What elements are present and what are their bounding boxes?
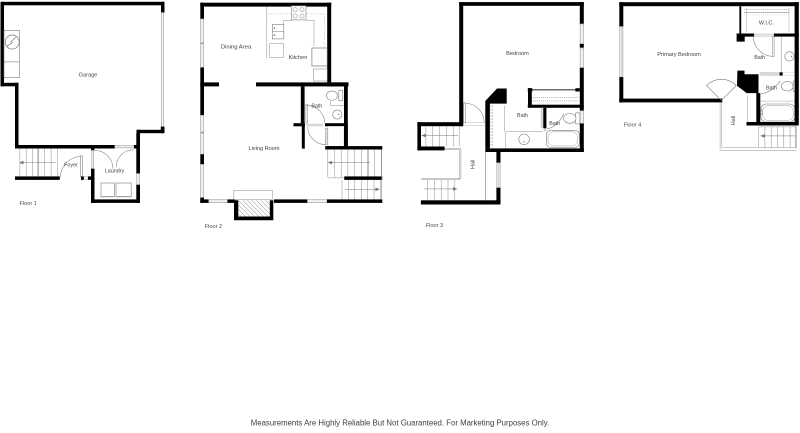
svg-text:Primary Bedroom: Primary Bedroom bbox=[657, 52, 701, 58]
svg-text:Foyer: Foyer bbox=[64, 162, 78, 168]
svg-text:Kitchen: Kitchen bbox=[289, 55, 308, 61]
svg-text:Garage: Garage bbox=[79, 72, 98, 78]
svg-text:Floor 4: Floor 4 bbox=[624, 123, 641, 129]
svg-text:Bath: Bath bbox=[754, 55, 765, 61]
svg-text:Dining Area: Dining Area bbox=[221, 44, 252, 50]
svg-text:Bath: Bath bbox=[549, 121, 560, 127]
svg-text:Living Room: Living Room bbox=[248, 146, 279, 152]
svg-text:Floor 1: Floor 1 bbox=[20, 201, 37, 207]
svg-text:Laundry: Laundry bbox=[105, 168, 125, 174]
svg-text:Hall: Hall bbox=[471, 160, 477, 169]
svg-text:Floor 3: Floor 3 bbox=[426, 223, 443, 229]
svg-text:Bedroom: Bedroom bbox=[506, 51, 529, 57]
svg-text:Measurements Are Highly Reliab: Measurements Are Highly Reliable But Not… bbox=[251, 419, 549, 428]
svg-text:Bath: Bath bbox=[311, 103, 322, 109]
svg-text:Floor 2: Floor 2 bbox=[205, 224, 222, 230]
svg-text:W.I.C.: W.I.C. bbox=[759, 21, 774, 27]
svg-text:Bath: Bath bbox=[517, 113, 528, 119]
svg-text:Hall: Hall bbox=[731, 116, 737, 125]
svg-text:Bath: Bath bbox=[766, 86, 777, 92]
